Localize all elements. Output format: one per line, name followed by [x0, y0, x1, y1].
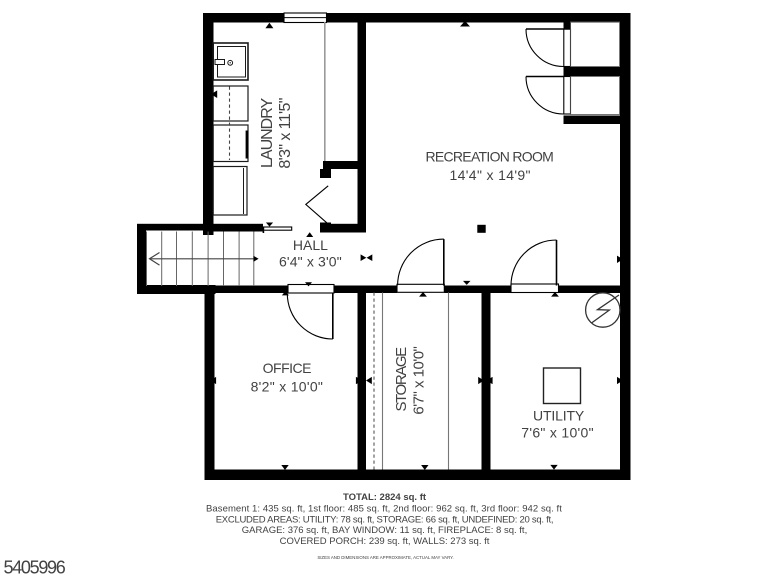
svg-text:GARAGE: 376 sq. ft, BAY WINDOW: GARAGE: 376 sq. ft, BAY WINDOW: 11 sq. f…	[242, 525, 527, 536]
svg-text:RECREATION ROOM: RECREATION ROOM	[425, 149, 553, 165]
svg-text:Basement 1: 435 sq. ft, 1st fl: Basement 1: 435 sq. ft, 1st floor: 485 s…	[206, 503, 562, 514]
svg-text:8'2" x 10'0": 8'2" x 10'0"	[251, 379, 324, 395]
svg-text:6'4" x 3'0": 6'4" x 3'0"	[279, 254, 342, 270]
svg-text:8'3" x 11'5": 8'3" x 11'5"	[277, 98, 294, 168]
svg-text:LAUNDRY: LAUNDRY	[259, 97, 276, 168]
svg-text:14'4" x 14'9": 14'4" x 14'9"	[450, 167, 531, 183]
svg-text:5405996: 5405996	[4, 558, 66, 576]
svg-text:6'7" x 10'0": 6'7" x 10'0"	[411, 346, 428, 414]
svg-text:OFFICE: OFFICE	[263, 360, 311, 376]
svg-text:UTILITY: UTILITY	[533, 407, 585, 423]
svg-text:COVERED PORCH: 239 sq. ft, WAL: COVERED PORCH: 239 sq. ft, WALLS: 273 sq…	[280, 536, 490, 547]
svg-text:TOTAL: 2824 sq. ft: TOTAL: 2824 sq. ft	[343, 492, 427, 503]
svg-text:7'6" x 10'0": 7'6" x 10'0"	[521, 425, 594, 441]
svg-text:HALL: HALL	[293, 237, 328, 253]
svg-text:EXCLUDED AREAS: UTILITY: 78 sq: EXCLUDED AREAS: UTILITY: 78 sq. ft, STOR…	[216, 514, 554, 525]
svg-text:STORAGE: STORAGE	[393, 347, 410, 412]
svg-text:SIZES AND DIMENSIONS ARE APPRO: SIZES AND DIMENSIONS ARE APPROXIMATE, AC…	[317, 555, 453, 560]
